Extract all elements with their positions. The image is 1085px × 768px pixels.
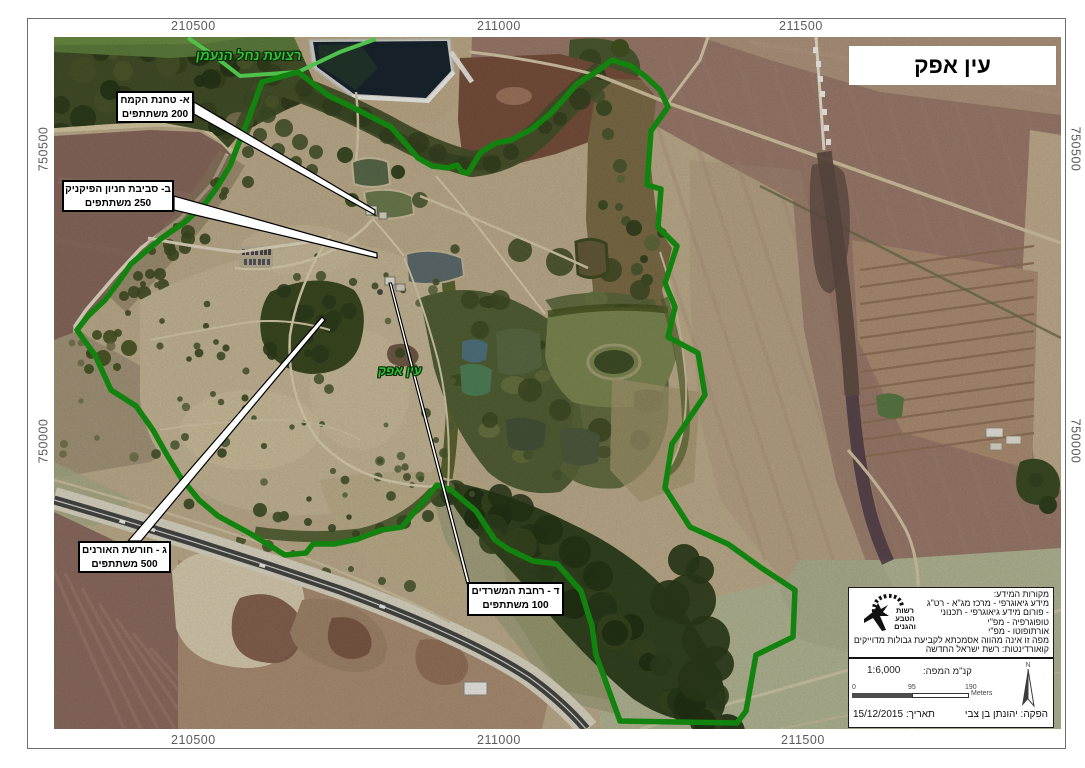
svg-text:N: N [1025, 662, 1030, 669]
svg-text:והגנים: והגנים [894, 622, 916, 631]
